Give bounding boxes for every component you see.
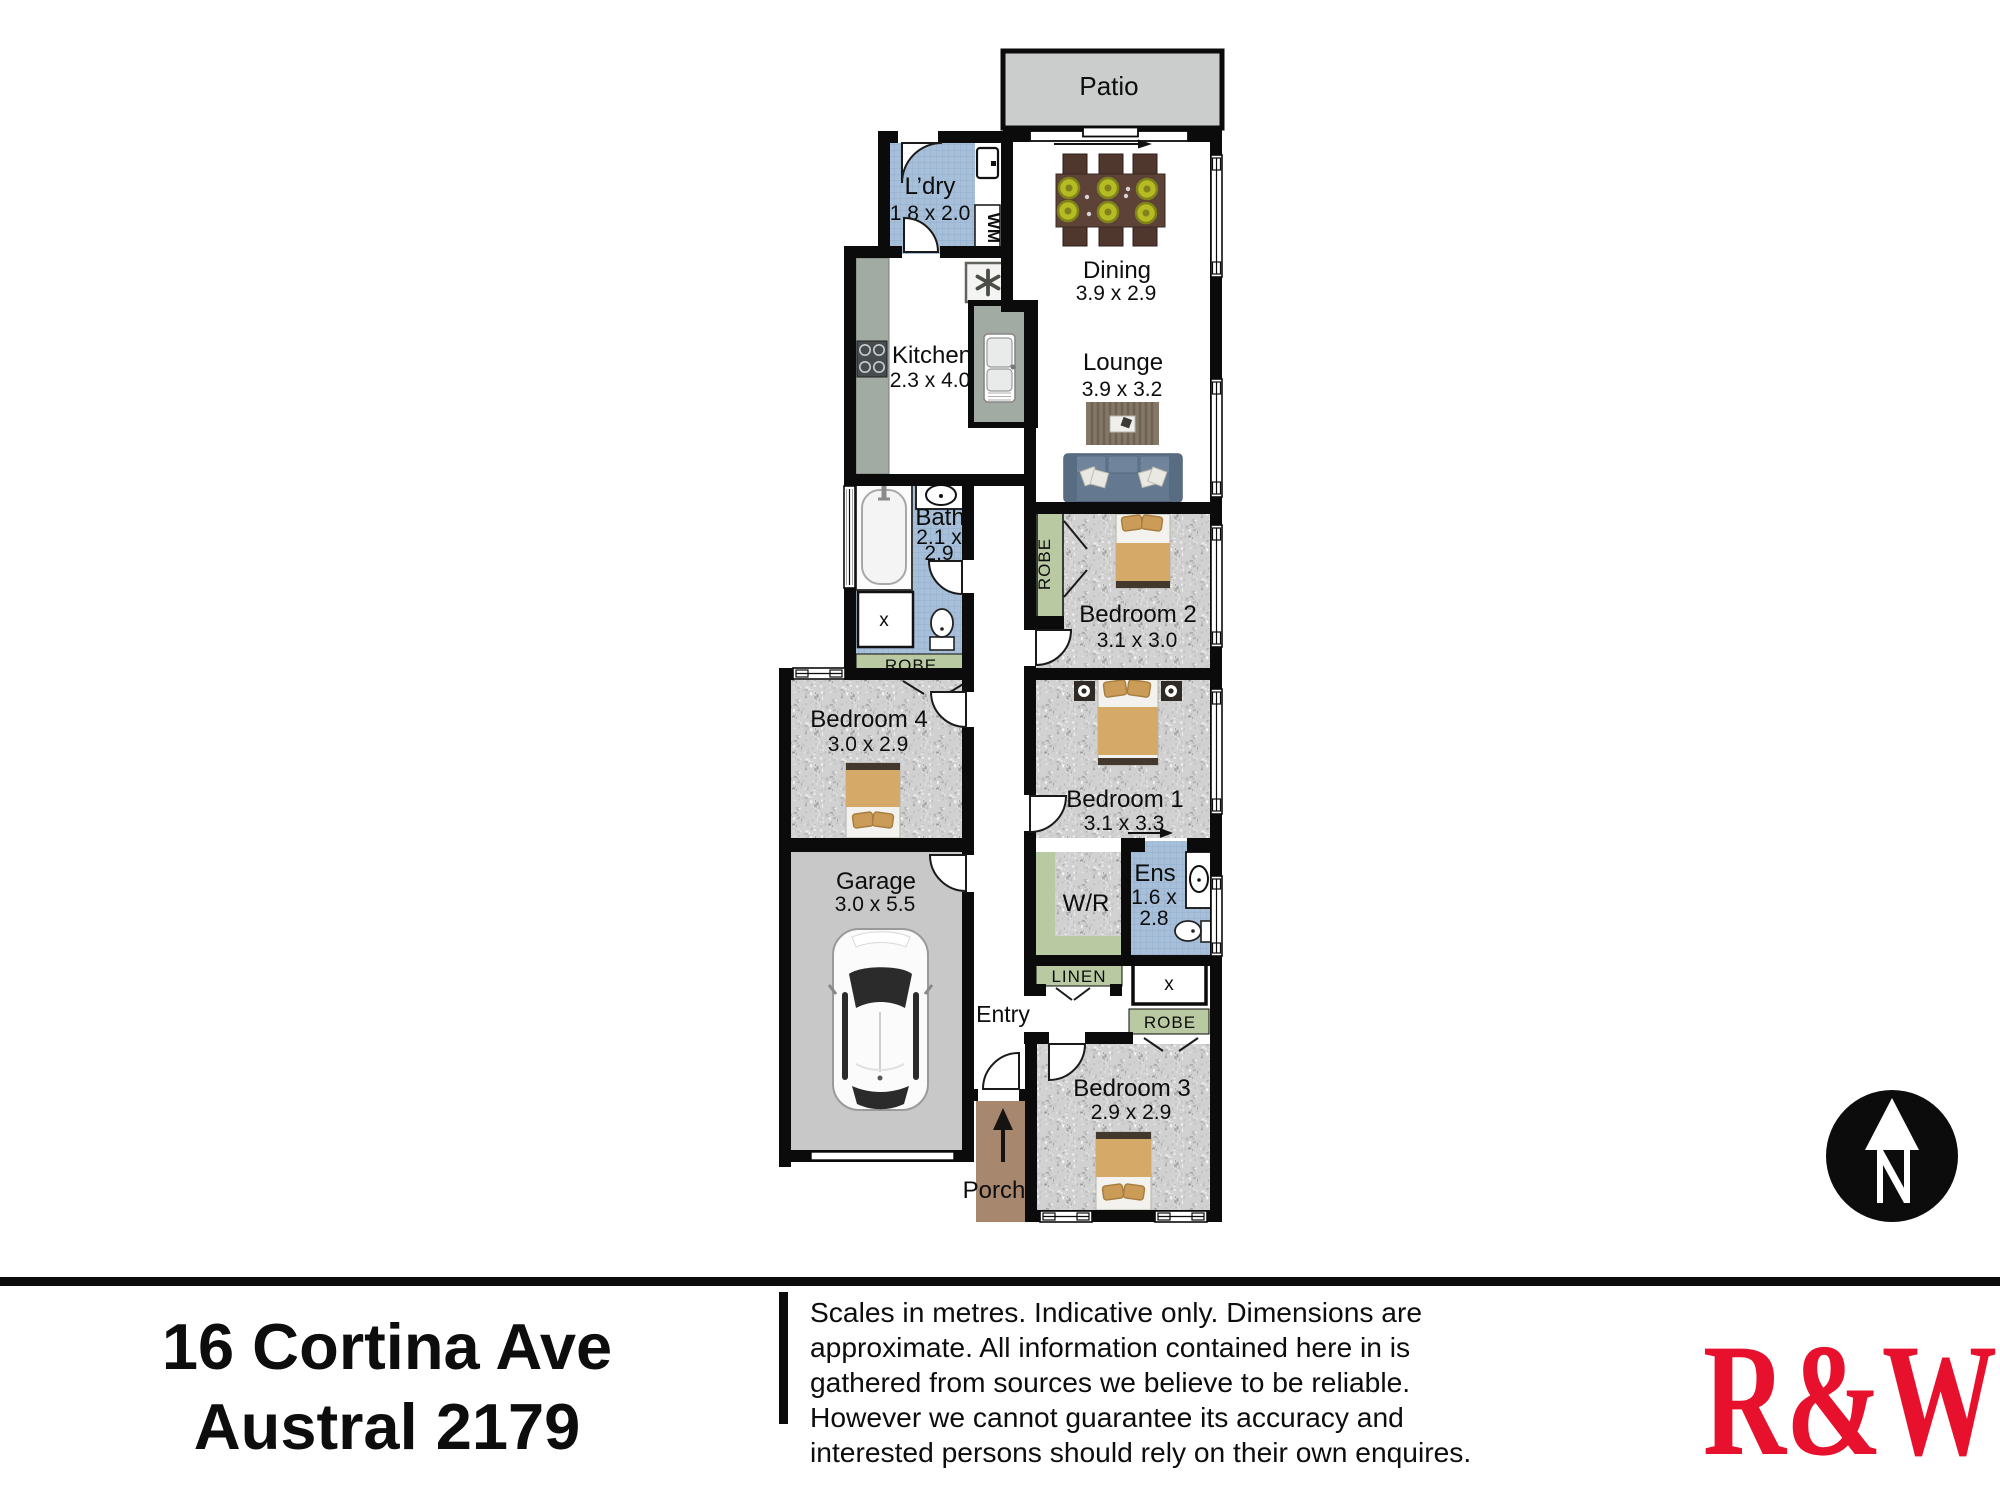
svg-text:Bedroom 2: Bedroom 2 <box>1079 601 1196 628</box>
svg-text:Garage: Garage <box>836 868 916 895</box>
svg-text:Scales in metres. Indicative o: Scales in metres. Indicative only. Dimen… <box>810 1296 1422 1328</box>
svg-text:1.8 x 2.0: 1.8 x 2.0 <box>890 202 971 225</box>
svg-text:3.0 x 5.5: 3.0 x 5.5 <box>835 893 916 916</box>
svg-text:L’dry: L’dry <box>905 173 956 200</box>
svg-text:Patio: Patio <box>1079 71 1138 101</box>
svg-text:1.6 x: 1.6 x <box>1131 886 1177 909</box>
svg-text:3.0 x 2.9: 3.0 x 2.9 <box>828 733 909 756</box>
svg-text:approximate. All information c: approximate. All information contained h… <box>810 1331 1410 1363</box>
svg-text:However we cannot guarantee it: However we cannot guarantee its accuracy… <box>810 1401 1404 1433</box>
svg-text:Ens: Ens <box>1134 860 1175 887</box>
svg-text:3.9 x 2.9: 3.9 x 2.9 <box>1076 282 1157 305</box>
svg-text:Bedroom 4: Bedroom 4 <box>810 706 927 733</box>
svg-text:x: x <box>1164 974 1174 995</box>
svg-text:R&W: R&W <box>1703 1311 1997 1489</box>
svg-text:ROBE: ROBE <box>1035 538 1054 590</box>
svg-text:gathered from sources we belie: gathered from sources we believe to be r… <box>810 1366 1410 1398</box>
svg-text:3.1 x 3.0: 3.1 x 3.0 <box>1097 629 1178 652</box>
svg-text:3.9 x 3.2: 3.9 x 3.2 <box>1082 378 1163 401</box>
svg-text:2.8: 2.8 <box>1139 907 1168 930</box>
svg-text:Dining: Dining <box>1083 257 1151 284</box>
svg-text:3.1 x 3.3: 3.1 x 3.3 <box>1084 812 1165 835</box>
svg-text:LINEN: LINEN <box>1051 967 1106 986</box>
svg-text:ROBE: ROBE <box>1144 1013 1196 1032</box>
svg-text:x: x <box>879 610 889 631</box>
svg-text:Austral 2179: Austral 2179 <box>194 1390 581 1463</box>
svg-text:Entry: Entry <box>976 1001 1030 1027</box>
svg-text:Lounge: Lounge <box>1083 349 1163 376</box>
svg-text:W/R: W/R <box>1063 890 1110 917</box>
svg-text:2.9 x 2.9: 2.9 x 2.9 <box>1091 1101 1172 1124</box>
svg-text:Bedroom 1: Bedroom 1 <box>1066 786 1183 813</box>
svg-text:16 Cortina Ave: 16 Cortina Ave <box>162 1310 612 1383</box>
svg-text:interested persons should rely: interested persons should rely on their … <box>810 1436 1471 1468</box>
svg-text:Kitchen: Kitchen <box>892 342 972 369</box>
svg-text:WM: WM <box>984 213 1003 243</box>
svg-text:Bedroom 3: Bedroom 3 <box>1073 1075 1190 1102</box>
svg-text:Porch: Porch <box>963 1177 1026 1204</box>
svg-text:2.3 x 4.0: 2.3 x 4.0 <box>890 369 971 392</box>
